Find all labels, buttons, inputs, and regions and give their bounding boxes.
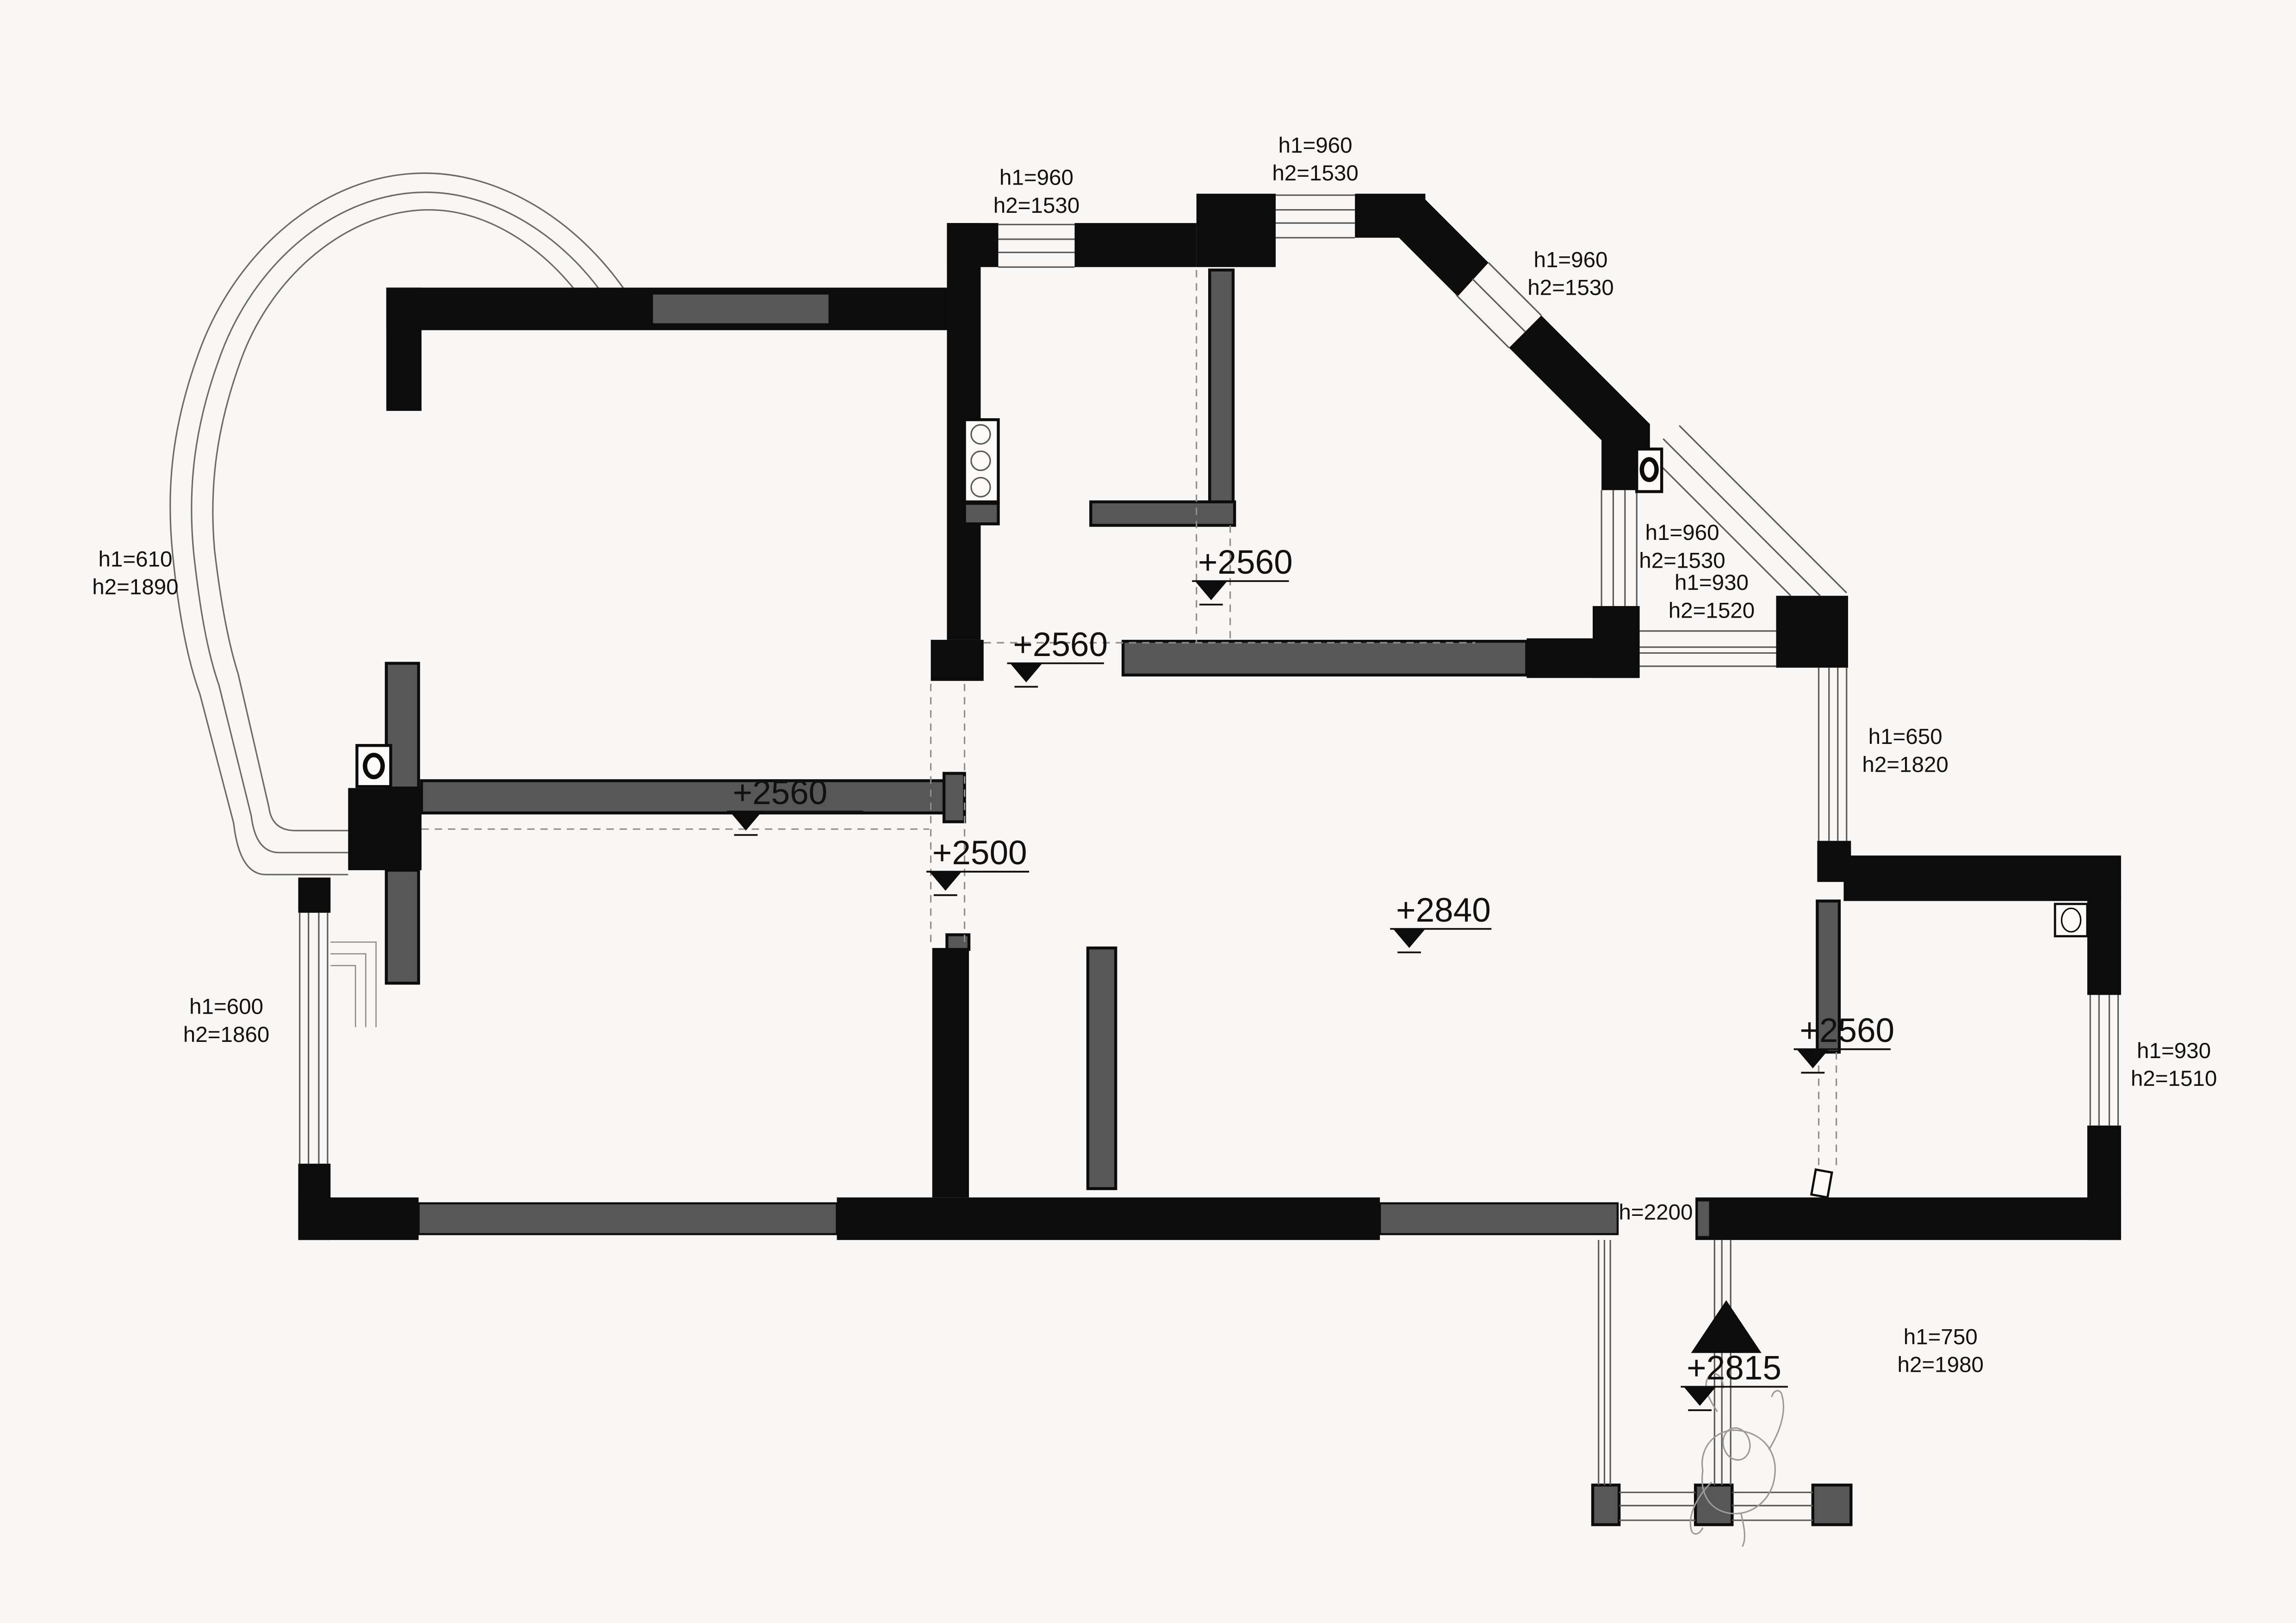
level-value: +2815 bbox=[1687, 1349, 1781, 1387]
floor-plan-canvas: h1=960h2=1530h1=960h2=1530h1=960h2=1530h… bbox=[0, 0, 2296, 1623]
dim-label-right-upper-window-1: h2=1530 bbox=[1639, 548, 1725, 573]
gray-pier-lower bbox=[386, 870, 419, 983]
appliance-icon bbox=[2055, 904, 2087, 936]
top-left-wall-stub bbox=[386, 288, 422, 411]
dim-label-right-upper-window-0: h1=960 bbox=[1645, 520, 1719, 545]
corner-column bbox=[1776, 596, 1848, 668]
porch-post-mid bbox=[1695, 1485, 1732, 1525]
top-right-room-bottom-black bbox=[1527, 638, 1639, 678]
interior-wall-stub bbox=[932, 948, 969, 1197]
l-partition-horizontal bbox=[1091, 502, 1235, 526]
long-gray-partition bbox=[422, 781, 944, 813]
dim-label-east-glass-window-0: h1=650 bbox=[1868, 725, 1942, 749]
stub-gray-notch bbox=[947, 935, 969, 949]
gray-partition-endcap bbox=[944, 774, 964, 822]
br-room-right-wall-upper bbox=[2087, 880, 2121, 995]
utility-wall-block bbox=[348, 788, 422, 870]
stove-stub bbox=[965, 503, 999, 524]
bottom-wall-gray-2 bbox=[1380, 1203, 1618, 1234]
porch-post-right bbox=[1813, 1485, 1851, 1525]
left-wall-bottom bbox=[298, 1164, 331, 1240]
door-swing-icon bbox=[1812, 1170, 1832, 1197]
dim-label-kitchen-top-window-0: h1=960 bbox=[999, 166, 1074, 190]
dim-label-bay-window-0: h1=610 bbox=[98, 547, 172, 571]
dim-label-bottom-right-window-0: h1=930 bbox=[2137, 1039, 2211, 1063]
floor-plan-svg: h1=960h2=1530h1=960h2=1530h1=960h2=1530h… bbox=[0, 0, 2296, 1623]
dim-label-entry-opening-0: h=2200 bbox=[1619, 1200, 1693, 1225]
dim-label-diagonal-window-1: h2=1530 bbox=[1527, 276, 1614, 300]
dim-label-left-lower-window-0: h1=600 bbox=[189, 995, 263, 1019]
level-value: +2560 bbox=[1013, 626, 1108, 663]
porch-post-left bbox=[1593, 1485, 1619, 1525]
dim-label-east-glass-window-1: h2=1820 bbox=[1862, 752, 1948, 777]
top-step-block bbox=[1197, 194, 1276, 267]
door-leaf-living bbox=[1088, 948, 1116, 1189]
bottom-wall-mid bbox=[837, 1197, 1380, 1240]
stove-icon bbox=[965, 420, 999, 502]
dim-label-top-middle-window-1: h2=1530 bbox=[1272, 161, 1359, 186]
dim-label-diagonal-window-0: h1=960 bbox=[1533, 248, 1607, 272]
kitchen-top-wall-mid bbox=[1074, 223, 1196, 267]
entry-jamb bbox=[1697, 1201, 1710, 1237]
dim-label-top-middle-window-0: h1=960 bbox=[1278, 133, 1353, 158]
dim-label-left-lower-window-1: h2=1860 bbox=[183, 1022, 270, 1047]
br-room-bottom-wall bbox=[1695, 1197, 2121, 1240]
dim-label-bottom-right-window-1: h2=1510 bbox=[2131, 1066, 2217, 1091]
kitchen-corner-block bbox=[931, 640, 984, 681]
level-value: +2840 bbox=[1396, 892, 1491, 929]
level-value: +2560 bbox=[732, 774, 827, 811]
top-right-room-bottom-gray bbox=[1123, 641, 1527, 675]
br-room-top-wall bbox=[1843, 855, 2121, 901]
washer-icon bbox=[357, 745, 391, 787]
l-partition-vertical bbox=[1210, 270, 1233, 502]
kitchen-top-wall-left bbox=[947, 223, 998, 267]
dim-label-bay-window-1: h2=1890 bbox=[92, 575, 179, 600]
level-value: +2500 bbox=[932, 834, 1027, 872]
dim-label-porch-window-0: h1=750 bbox=[1904, 1325, 1978, 1349]
level-value: +2560 bbox=[1198, 544, 1293, 581]
level-value: +2560 bbox=[1800, 1012, 1894, 1049]
left-wall-stub bbox=[298, 878, 331, 913]
bottom-wall-gray-1 bbox=[419, 1203, 837, 1234]
boiler-icon bbox=[1637, 449, 1662, 492]
dim-label-right-corner-window-1: h2=1520 bbox=[1669, 598, 1755, 623]
top-wall-inset bbox=[652, 293, 830, 324]
dim-label-porch-window-1: h2=1980 bbox=[1898, 1353, 1984, 1377]
dim-label-right-corner-window-0: h1=930 bbox=[1675, 570, 1749, 595]
dim-label-kitchen-top-window-1: h2=1530 bbox=[993, 193, 1080, 218]
